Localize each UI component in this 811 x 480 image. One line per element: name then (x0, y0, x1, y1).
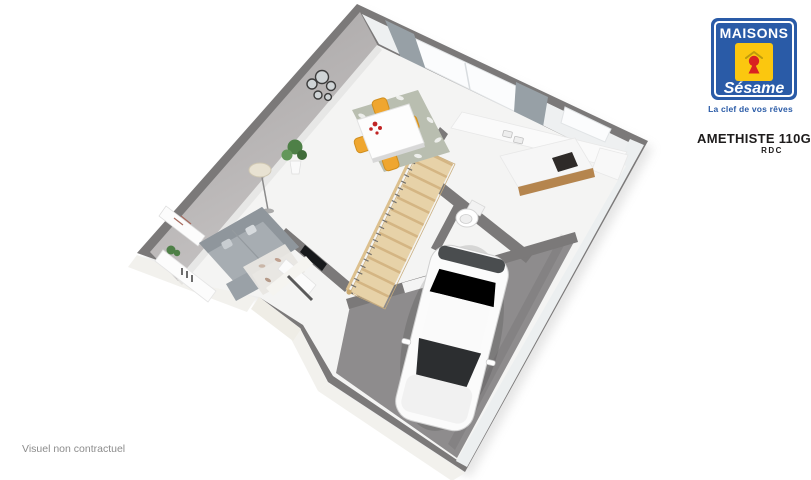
page: MAISONS Sésame La clef de vos rêves AMET… (0, 0, 811, 480)
floor-label: RDC (742, 146, 802, 155)
maisons-sesame-logo: MAISONS Sésame (711, 18, 797, 100)
model-name: AMETHISTE 110GI (697, 131, 811, 146)
logo-sesame-text: Sésame (711, 80, 797, 98)
logo-tagline: La clef de vos rêves (690, 104, 811, 114)
keyhole-icon (735, 43, 773, 81)
brand-block: MAISONS Sésame La clef de vos rêves AMET… (690, 18, 811, 114)
disclaimer-text: Visuel non contractuel (22, 443, 125, 455)
logo-maisons-text: MAISONS (711, 25, 797, 41)
